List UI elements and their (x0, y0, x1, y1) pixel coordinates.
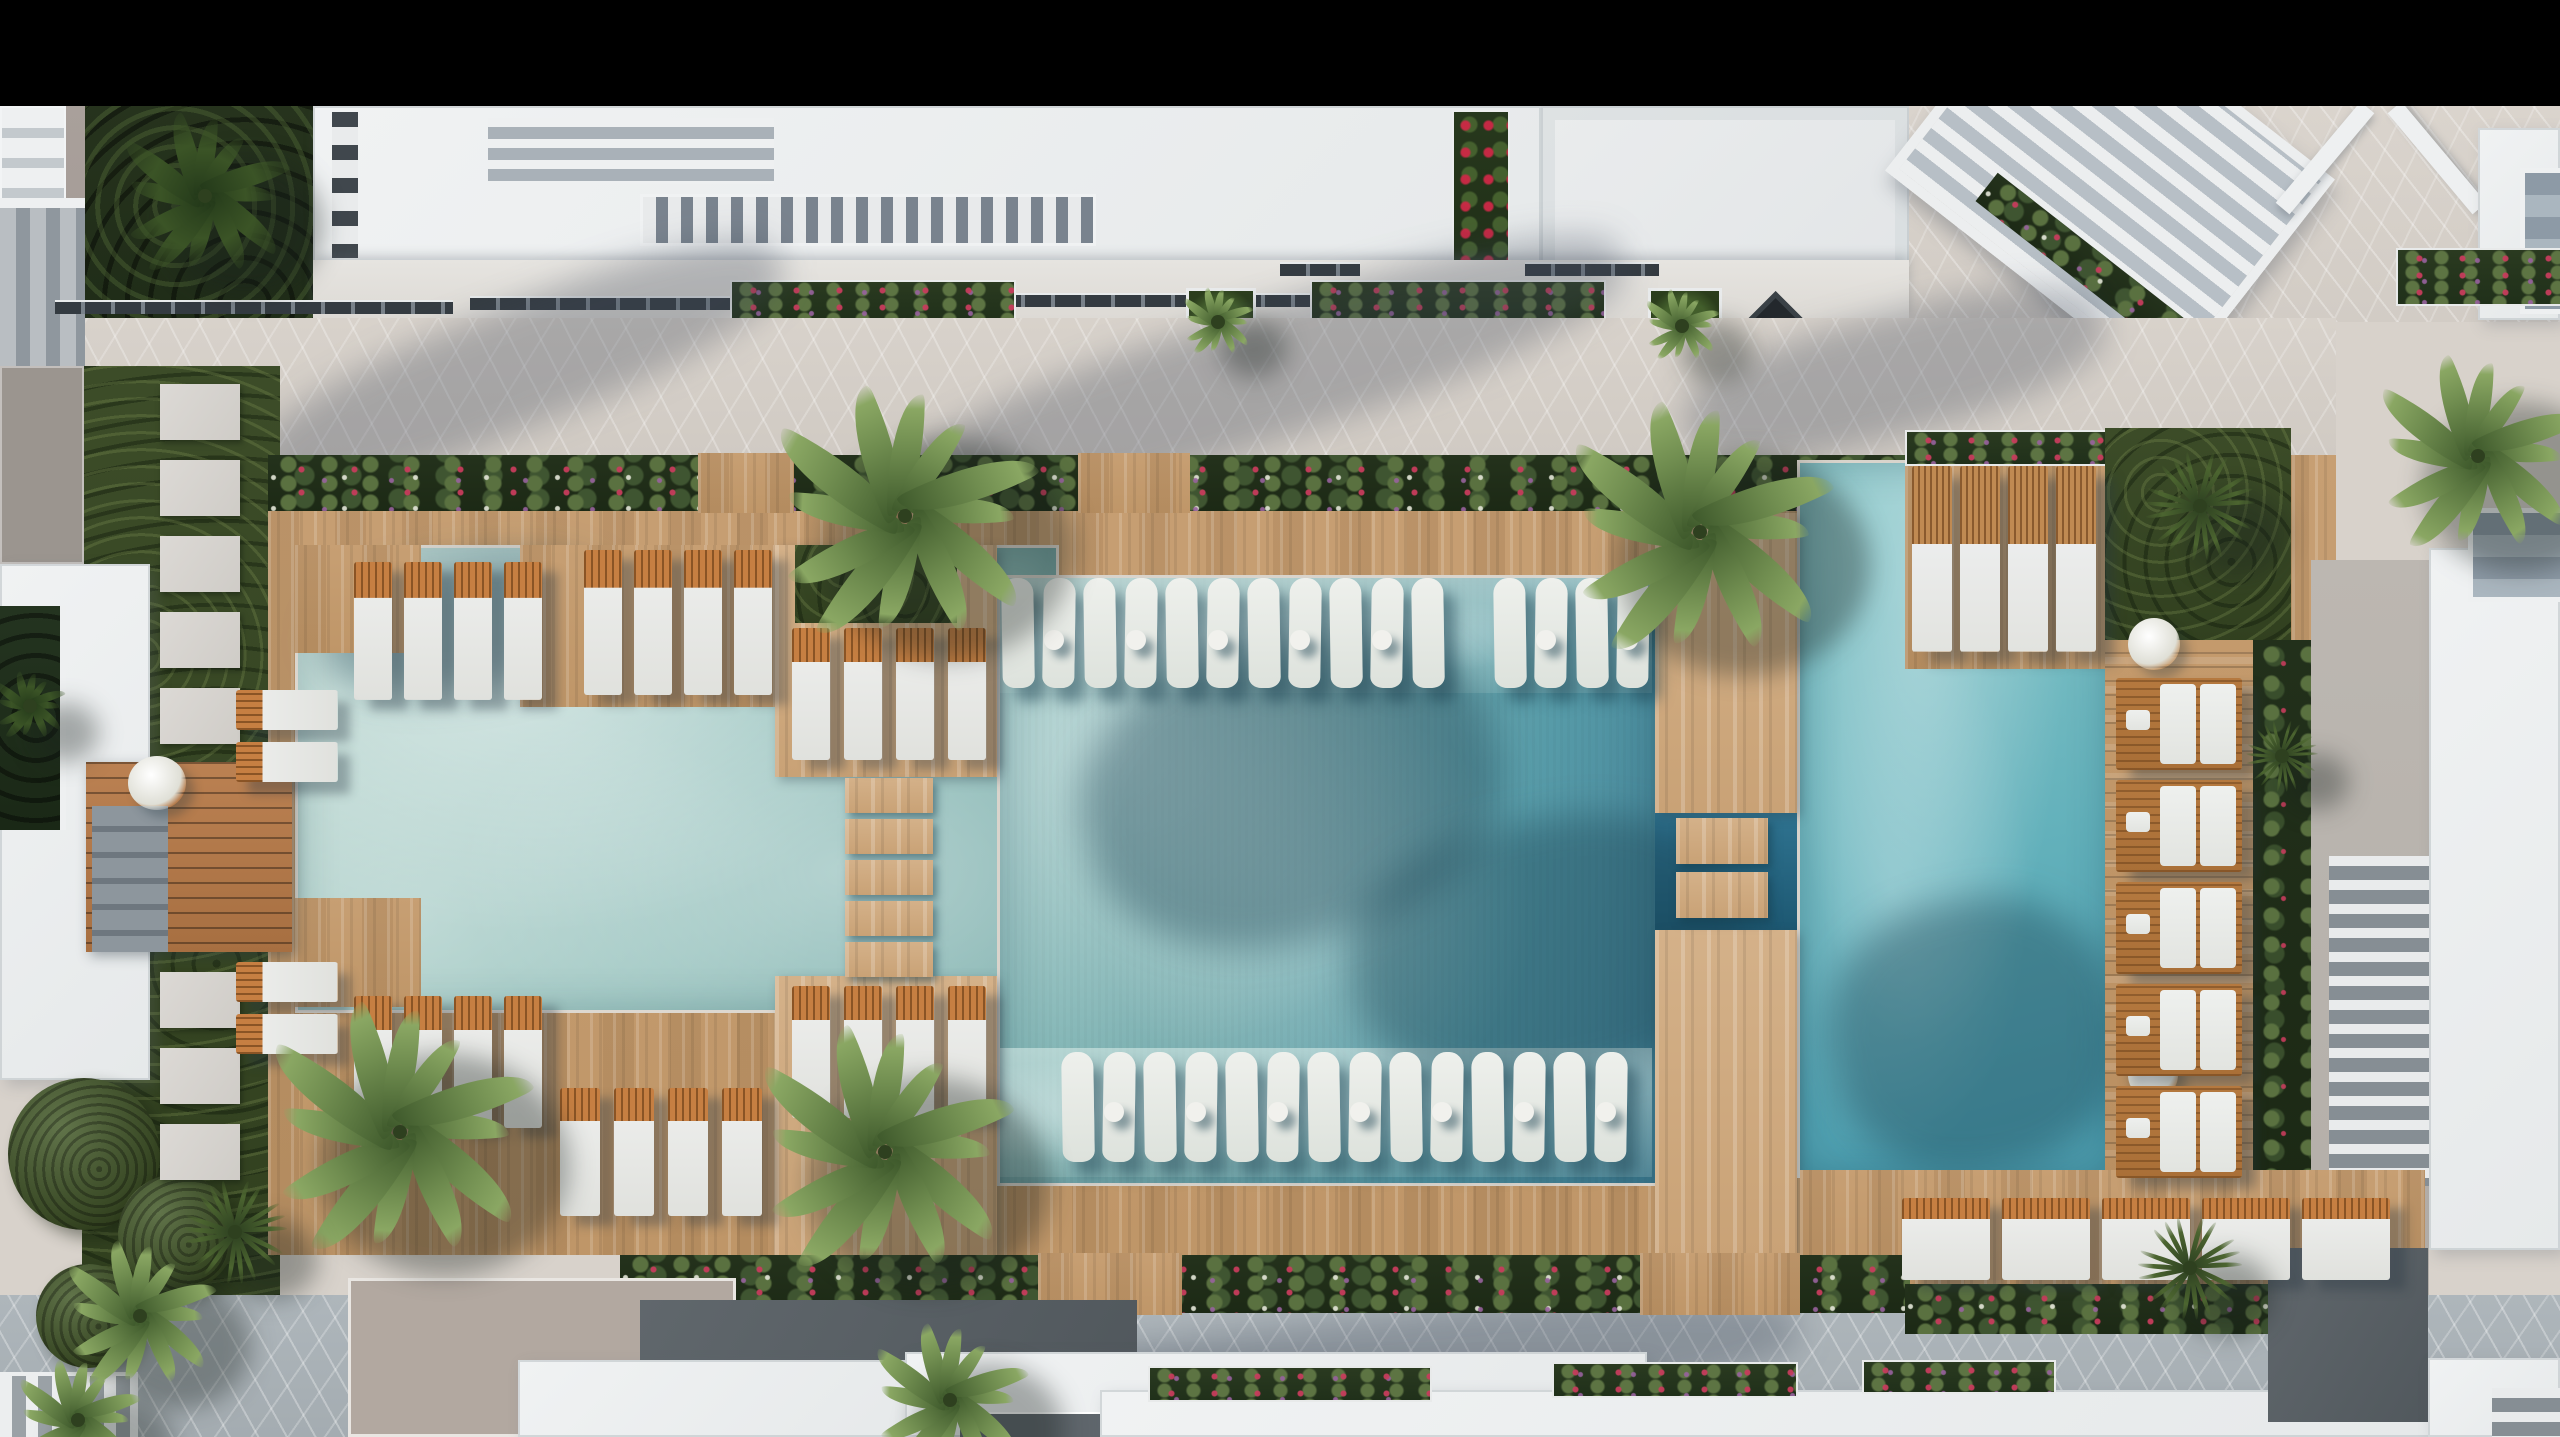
side-table (1432, 1102, 1452, 1122)
side-table (1618, 630, 1638, 650)
in-pool-lounger (1471, 1052, 1505, 1162)
stepping-stone (160, 536, 240, 592)
side-table (1514, 1102, 1534, 1122)
parapet-planter (1552, 1362, 1798, 1398)
stepping-stone (160, 972, 240, 1028)
towel (2126, 914, 2150, 934)
sun-lounger (1960, 466, 2000, 652)
towel (2126, 812, 2150, 832)
sun-lounger (844, 986, 882, 1118)
window-louver (2492, 1388, 2560, 1437)
deck-step-pad (1676, 818, 1768, 864)
in-pool-lounger (1001, 578, 1035, 688)
garden-right (2253, 640, 2311, 1262)
balcony-slot-railing (332, 112, 358, 258)
flower-bush (128, 756, 186, 810)
towel (2126, 1118, 2150, 1138)
side-table (1268, 1102, 1288, 1122)
deck-ramp (698, 453, 794, 513)
sun-lounger (668, 1088, 708, 1216)
sun-lounger (354, 562, 392, 700)
sun-lounger (560, 1088, 600, 1216)
sun-lounger (504, 562, 542, 700)
sun-lounger (2302, 1198, 2390, 1280)
parapet-planter (1148, 1366, 1432, 1402)
double-lounger-wood (2116, 678, 2242, 770)
roof-railing (640, 194, 1096, 246)
in-pool-lounger (1061, 1052, 1095, 1162)
sun-lounger (896, 986, 934, 1118)
towel (2126, 710, 2150, 730)
in-pool-lounger (1083, 578, 1117, 688)
sun-lounger (792, 986, 830, 1118)
in-pool-lounger (1307, 1052, 1341, 1162)
sun-lounger (504, 996, 542, 1128)
sun-lounger (948, 986, 986, 1118)
in-pool-lounger (1411, 578, 1445, 688)
palm-frond (2467, 376, 2526, 461)
sun-lounger (2008, 466, 2048, 652)
sun-lounger (2056, 466, 2096, 652)
in-pool-lounger (1329, 578, 1363, 688)
sun-lounger (684, 550, 722, 695)
lounger-cushion (2160, 786, 2196, 866)
double-lounger-wood (2116, 882, 2242, 974)
in-pool-lounger (1493, 578, 1527, 688)
sun-lounger (734, 550, 772, 695)
in-pool-lounger (1225, 1052, 1259, 1162)
deck-step-pad (845, 860, 933, 895)
lounger-cushion (2200, 1092, 2236, 1172)
deck-step-pad (845, 819, 933, 854)
balustrade (1280, 262, 1360, 276)
sun-lounger (236, 1014, 338, 1054)
in-pool-lounger (1389, 1052, 1423, 1162)
sun-lounger (634, 550, 672, 695)
flower-planter (1905, 430, 2107, 466)
in-pool-lounger (1553, 1052, 1587, 1162)
deck-junction-right (1655, 513, 1797, 813)
sun-lounger (948, 628, 986, 760)
sun-lounger (236, 690, 338, 730)
lounger-cushion (2200, 888, 2236, 968)
palm-frond (2369, 387, 2486, 471)
deck-ramp (1640, 1253, 1800, 1315)
sun-lounger (584, 550, 622, 695)
side-table (1350, 1102, 1370, 1122)
palm-lawn (795, 545, 957, 623)
towel (2126, 1016, 2150, 1036)
side-table (1596, 1102, 1616, 1122)
parasol (2128, 618, 2180, 670)
building-right (2429, 548, 2560, 1250)
scene (0, 106, 2560, 1437)
palm-frond (2464, 363, 2494, 457)
stepping-stone (160, 384, 240, 440)
sun-lounger (844, 628, 882, 760)
sun-lounger (896, 628, 934, 760)
topiary-ball (118, 1174, 236, 1292)
deck-step-pad (845, 901, 933, 936)
stepping-stone (160, 612, 240, 668)
sun-lounger (2002, 1198, 2090, 1280)
sun-lounger (404, 562, 442, 700)
in-pool-lounger (1247, 578, 1281, 688)
pergola-louvers (488, 118, 774, 184)
side-table (1290, 630, 1310, 650)
stair-steps (0, 106, 66, 202)
double-lounger-wood (2116, 780, 2242, 872)
sun-lounger (454, 996, 492, 1128)
topiary-ball (36, 1264, 140, 1368)
double-lounger-wood (2116, 984, 2242, 1076)
lounger-cushion (2200, 786, 2236, 866)
louver-facade (2329, 856, 2429, 1186)
sun-lounger (1912, 466, 1952, 652)
deck-step-pad (845, 942, 933, 977)
side-table (1372, 630, 1392, 650)
palm-frond (2477, 435, 2560, 468)
lounger-cushion (2200, 990, 2236, 1070)
window-frame (2468, 508, 2560, 602)
sun-lounger (404, 996, 442, 1128)
lounger-cushion (2160, 684, 2196, 764)
aerial-render (0, 0, 2560, 1437)
lounger-cushion (2200, 684, 2236, 764)
palm-crown (2471, 449, 2485, 463)
deck-step-pad (1676, 872, 1768, 918)
double-lounger-wood (2116, 1086, 2242, 1178)
building-bottom (518, 1360, 908, 1437)
flower-planter (2396, 248, 2560, 306)
deck-ramp (1078, 453, 1190, 513)
side-table (1536, 630, 1556, 650)
sun-lounger (236, 742, 338, 782)
side-table (1104, 1102, 1124, 1122)
sun-lounger (614, 1088, 654, 1216)
stepping-stone (160, 1048, 240, 1104)
parapet-planter (1862, 1360, 2056, 1394)
sun-lounger (722, 1088, 762, 1216)
palm-frond (2388, 438, 2479, 470)
lounger-cushion (2160, 888, 2196, 968)
building-roof-gray (0, 366, 84, 564)
letterbox-top (0, 0, 2560, 106)
balcony-railing (0, 1372, 138, 1437)
sun-lounger (236, 962, 338, 1002)
in-pool-lounger (1575, 578, 1609, 688)
in-pool-lounger (1143, 1052, 1177, 1162)
bridge-steps (92, 806, 168, 952)
sun-lounger (2202, 1198, 2290, 1280)
side-table (1126, 630, 1146, 650)
side-table (1044, 630, 1064, 650)
palm-frond (2422, 355, 2493, 462)
lounger-cushion (2160, 990, 2196, 1070)
deck-junction-right (1655, 930, 1797, 1258)
sun-lounger (454, 562, 492, 700)
palm-frond (2471, 395, 2560, 471)
lawn-right (2105, 428, 2291, 644)
stepping-stone (160, 688, 240, 744)
in-pool-lounger (1165, 578, 1199, 688)
stepping-stone (160, 460, 240, 516)
courtyard-garden (0, 606, 66, 830)
stepping-stone (160, 1124, 240, 1180)
side-table (1208, 630, 1228, 650)
deck-step-pad (845, 778, 933, 813)
balustrade (55, 300, 453, 314)
lounger-cushion (2160, 1092, 2196, 1172)
sun-lounger (2102, 1198, 2190, 1280)
side-table (1186, 1102, 1206, 1122)
sun-lounger (1902, 1198, 1990, 1280)
sun-lounger (792, 628, 830, 760)
sun-lounger (354, 996, 392, 1128)
